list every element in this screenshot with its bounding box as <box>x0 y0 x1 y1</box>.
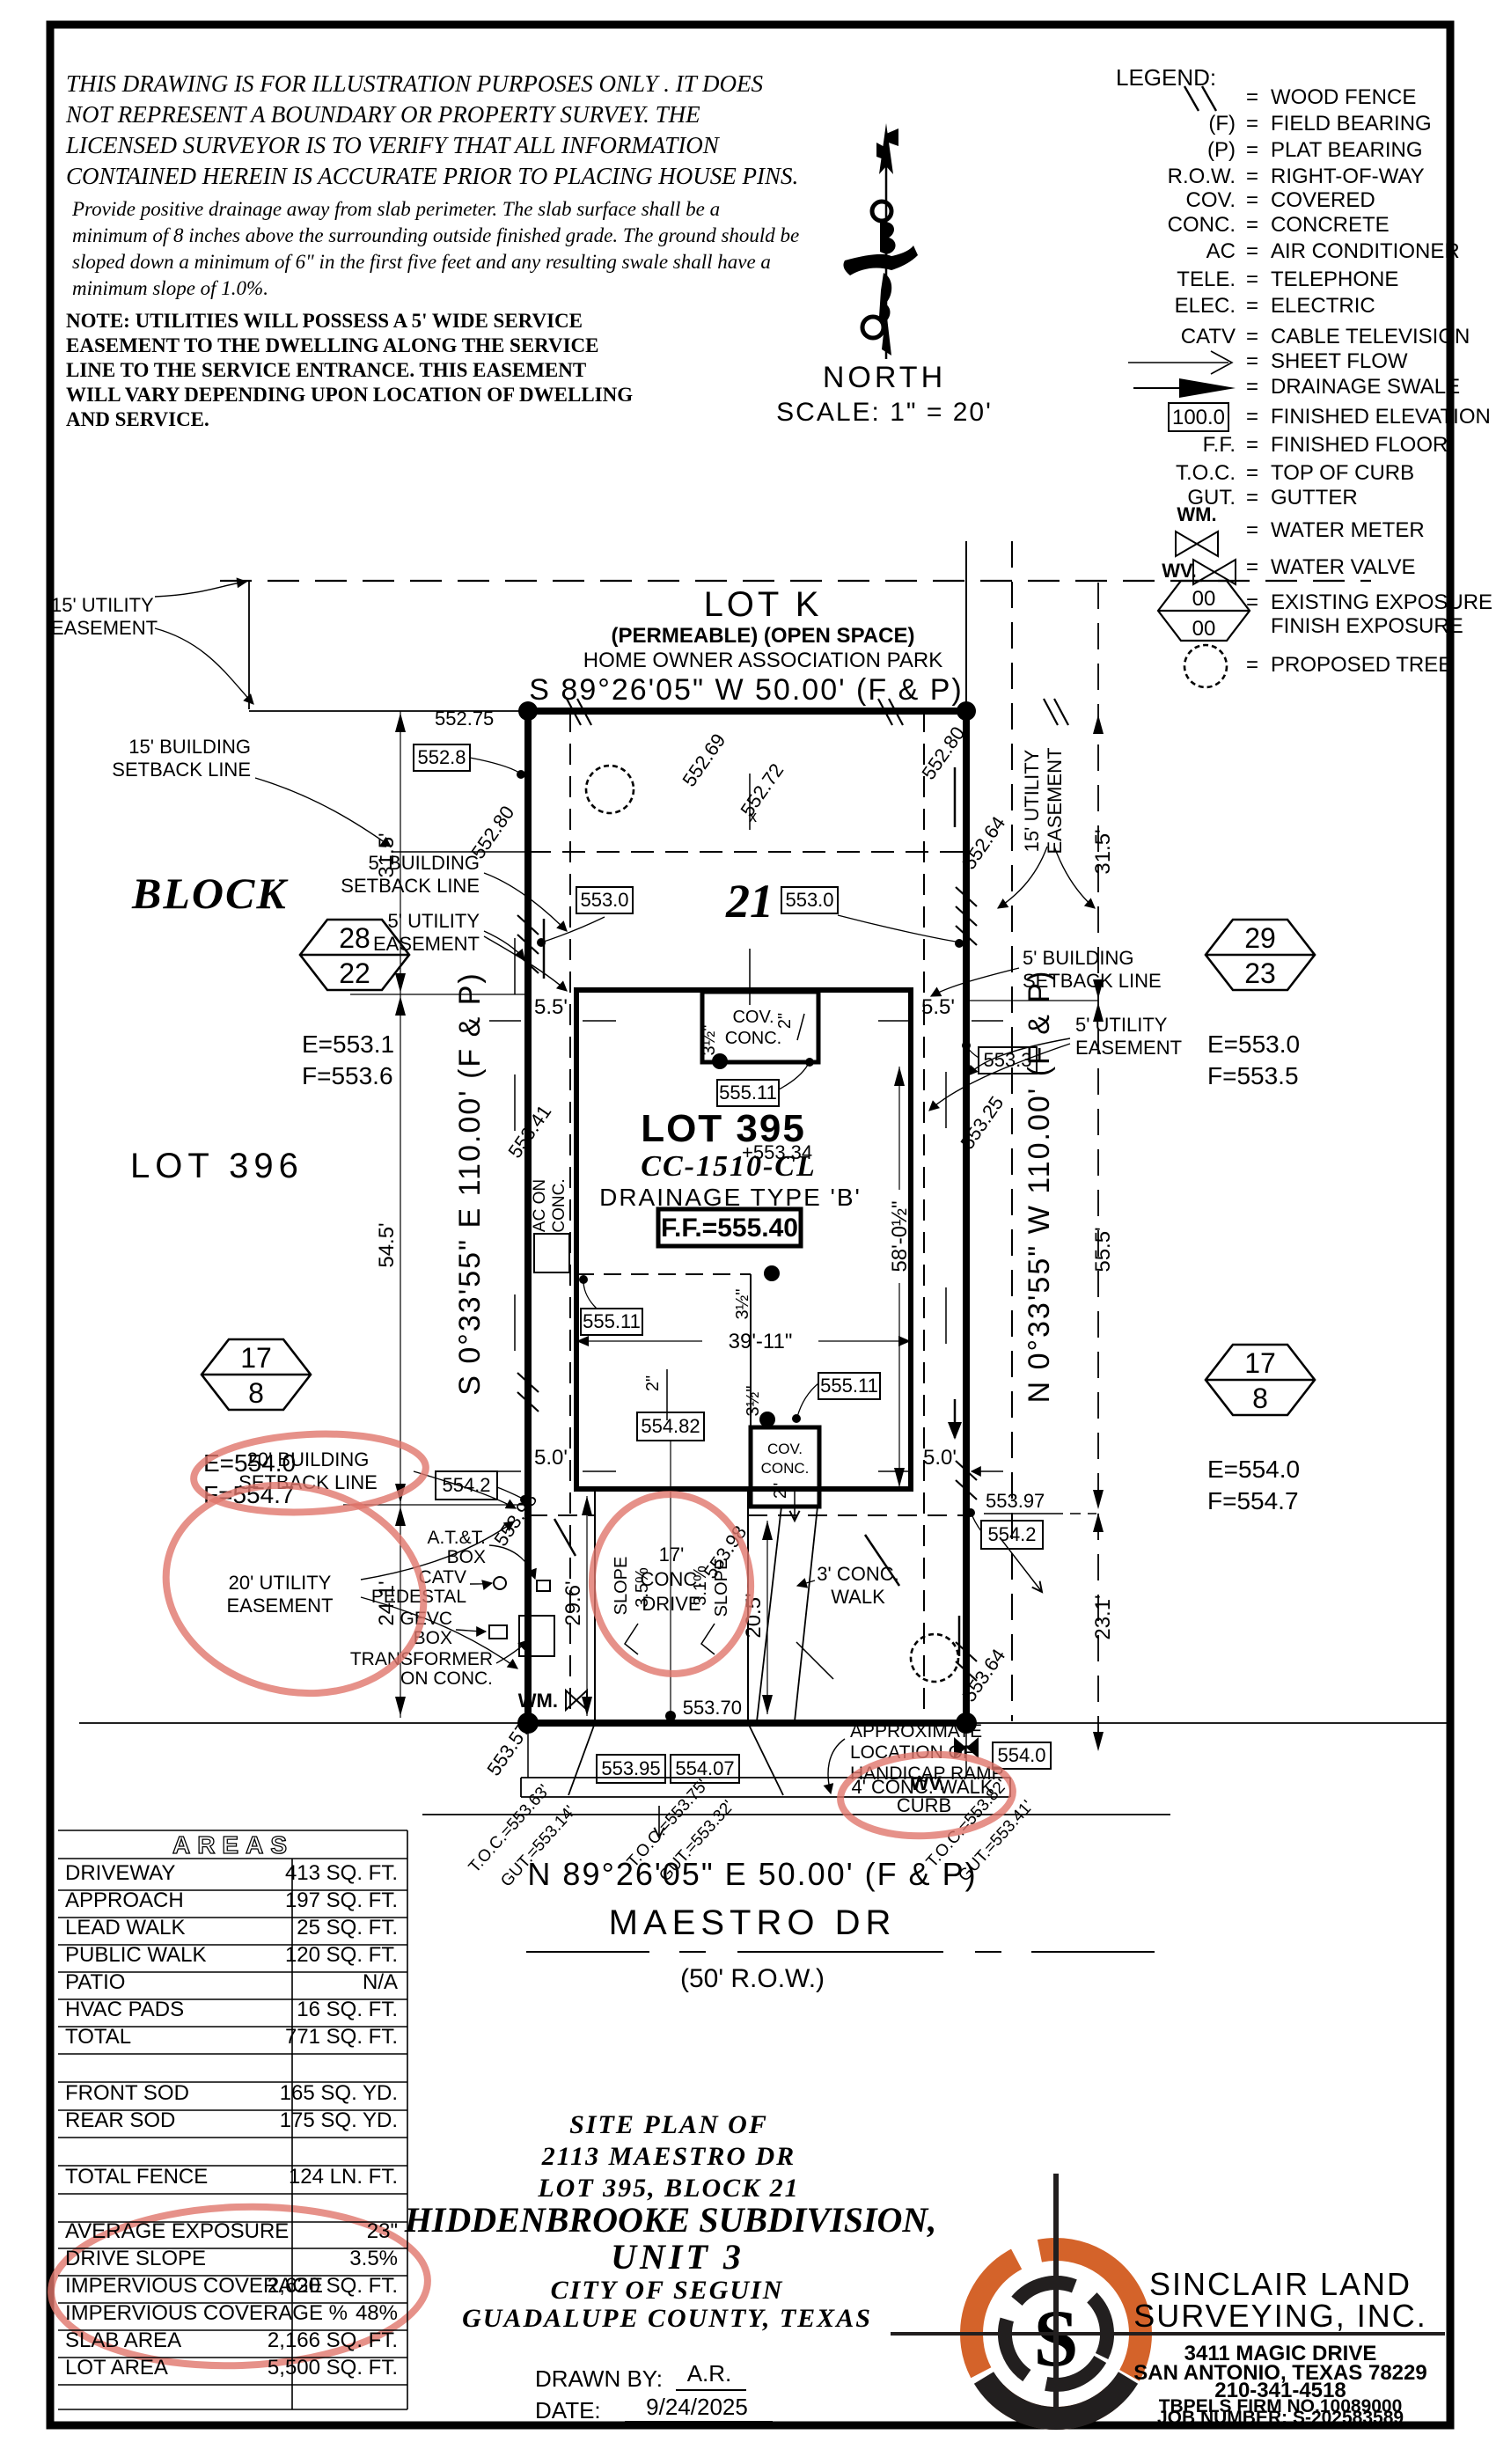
elev-554-82: 554.82 <box>641 1415 700 1437</box>
areas-row-value: N/A <box>363 1970 398 1994</box>
scale-label: SCALE: 1" = 20' <box>776 398 993 427</box>
legend-abbr: (F) <box>1208 112 1236 136</box>
legend-label-sheet-flow: SHEET FLOW <box>1271 349 1408 373</box>
legend-abbr: TELE. <box>1177 268 1236 291</box>
title-line4: HIDDENBROOKE SUBDIVISION, <box>404 2200 937 2240</box>
street-row: (50' R.O.W.) <box>680 1964 825 1993</box>
hex2-finish: 23 <box>1244 957 1276 989</box>
rear-cov: COV. <box>767 1441 803 1457</box>
elev-553-95: 553.95 <box>601 1757 660 1779</box>
legend-equals: = <box>1246 268 1258 291</box>
areas-row-label: DRIVEWAY <box>65 1861 175 1885</box>
walk3-1: 3' CONC. <box>817 1563 898 1585</box>
hex4-existing: 17 <box>1244 1347 1276 1379</box>
dim-5-0-left: 5.0' <box>534 1446 568 1470</box>
drive-17: 17' <box>659 1544 685 1566</box>
areas-row-value: 23" <box>367 2219 398 2243</box>
north-label: NORTH <box>823 361 946 394</box>
legend-label-concrete: CONCRETE <box>1271 213 1390 237</box>
title-line6: CITY OF SEGUIN <box>551 2276 784 2305</box>
disclaimer-para1-line: NOT REPRESENT A BOUNDARY OR PROPERTY SUR… <box>65 101 700 128</box>
legend-equals: = <box>1246 85 1258 109</box>
rear-3half: 3½" <box>744 1386 763 1417</box>
elev-553-0-right: 553.0 <box>785 889 833 911</box>
surveyor-job: JOB NUMBER: S-202583589 <box>1157 2408 1404 2428</box>
legend-equals: = <box>1246 239 1258 263</box>
legend-label-telephone: TELEPHONE <box>1271 268 1398 291</box>
dim-5-5-right: 5.5' <box>921 995 955 1019</box>
hex4-f: F=554.7 <box>1207 1487 1299 1514</box>
porch-3half: 3½" <box>700 1025 719 1056</box>
elev-554-2-left: 554.2 <box>442 1474 490 1496</box>
ue15-right-2: EASEMENT <box>1044 747 1066 854</box>
legend-equals: = <box>1246 486 1258 510</box>
disclaimer-para2-line: minimum slope of 1.0%. <box>72 277 268 299</box>
bs5-right-1: 5' BUILDING <box>1023 947 1133 969</box>
bs15-left-2: SETBACK LINE <box>112 759 251 781</box>
areas-row-label: APPROACH <box>65 1888 184 1912</box>
surveyor-name-1: SINCLAIR LAND <box>1149 2266 1412 2302</box>
walk3-2: WALK <box>831 1586 885 1608</box>
drainage-type: DRAINAGE TYPE 'B' <box>599 1184 862 1211</box>
ue15-right-1: 15' UTILITY <box>1021 749 1043 852</box>
elev-554-2-right: 554.2 <box>987 1523 1036 1545</box>
elev-555-11-b: 555.11 <box>583 1310 641 1332</box>
dim-55-5: 55.5' <box>1091 1227 1115 1272</box>
legend-equals: = <box>1246 349 1258 373</box>
x-marker: x <box>749 808 757 825</box>
wm-abbr: WM. <box>1177 503 1216 525</box>
legend-label-finish-exposure: FINISH EXPOSURE <box>1271 614 1463 638</box>
date-value: 9/24/2025 <box>646 2394 748 2420</box>
areas-row-label: LOT AREA <box>65 2356 168 2380</box>
disclaimer-note-line: NOTE: UTILITIES WILL POSSESS A 5' WIDE S… <box>66 310 583 332</box>
catv-1: CATV <box>419 1567 466 1588</box>
bearing-west: S 0°33'55" E 110.00' (F & P) <box>453 972 487 1395</box>
slope-left: SLOPE <box>612 1557 631 1616</box>
spot-553-70: 553.70 <box>683 1697 742 1719</box>
legend-abbr: ELEC. <box>1175 294 1236 318</box>
surveyor-name-2: SURVEYING, INC. <box>1133 2298 1426 2334</box>
porch-conc: CONC. <box>725 1029 781 1048</box>
disclaimer-para2-line: sloped down a minimum of 6" in the first… <box>72 251 771 273</box>
disclaimer-note-line: LINE TO THE SERVICE ENTRANCE. THIS EASEM… <box>66 359 586 381</box>
legend-label-existing-exposure: EXISTING EXPOSURE <box>1271 590 1492 614</box>
hex4-e: E=554.0 <box>1207 1456 1300 1483</box>
areas-row-label: TOTAL <box>65 2025 131 2049</box>
areas-title: AREAS <box>172 1831 294 1859</box>
spot-552-75: 552.75 <box>435 708 494 730</box>
legend-label-finished-elevation: FINISHED ELEVATION <box>1271 405 1491 429</box>
elev-555-11-a: 555.11 <box>719 1082 777 1104</box>
dim-31-5-left: 31.5' <box>375 832 399 877</box>
legend-label-water-meter: WATER METER <box>1271 518 1425 542</box>
title-line1: SITE PLAN OF <box>569 2110 768 2139</box>
legend-label-field-bearing: FIELD BEARING <box>1271 112 1432 136</box>
drawn-by-label: DRAWN BY: <box>535 2365 663 2392</box>
title-line2: 2113 MAESTRO DR <box>541 2142 796 2171</box>
wv-abbr: WV. <box>1162 560 1197 582</box>
areas-row-label: TOTAL FENCE <box>65 2165 208 2189</box>
att-2: BOX <box>447 1547 486 1567</box>
dim-58-0: 58'-0½" <box>888 1200 912 1272</box>
att-1: A.T.&T. <box>427 1528 486 1548</box>
areas-row-label: AVERAGE EXPOSURE <box>65 2219 289 2243</box>
disclaimer-para1-line: LICENSED SURVEYOR IS TO VERIFY THAT ALL … <box>65 132 721 158</box>
ue5-left-1: 5' UTILITY <box>388 910 480 932</box>
porch-2in: 2" <box>775 1013 795 1029</box>
finished-elevation-icon: 100.0 <box>1169 403 1228 431</box>
areas-row-value: 124 LN. FT. <box>289 2165 398 2189</box>
hex1-existing: 28 <box>339 922 370 954</box>
legend-equals: = <box>1246 518 1258 542</box>
areas-row-label: PATIO <box>65 1970 125 1994</box>
areas-row-label: FRONT SOD <box>65 2081 189 2105</box>
spot-553-97: 553.97 <box>986 1490 1045 1512</box>
lot-k-title: LOT K <box>704 585 823 624</box>
areas-row-label: IMPERVIOUS COVERAGE % <box>65 2301 348 2325</box>
ue20-1: 20' UTILITY <box>229 1572 332 1594</box>
legend-label-finished-floor: FINISHED FLOOR <box>1271 433 1448 457</box>
bearing-north: S 89°26'05" W 50.00' (F & P) <box>529 673 963 707</box>
title-line7: GUADALUPE COUNTY, TEXAS <box>462 2304 872 2333</box>
legend-label-drainage-swale: DRAINAGE SWALE <box>1271 375 1460 399</box>
legend-abbr: F.F. <box>1203 433 1236 457</box>
areas-row-label: DRIVE SLOPE <box>65 2247 206 2270</box>
wm-label: WM. <box>518 1690 558 1712</box>
exposure-existing: 00 <box>1192 587 1216 611</box>
areas-row-value: 2,620 SQ. FT. <box>268 2274 398 2298</box>
legend-label-electric: ELECTRIC <box>1271 294 1375 318</box>
areas-row-label: SLAB AREA <box>65 2328 181 2352</box>
title-line5: UNIT 3 <box>611 2237 744 2277</box>
legend-abbr: R.O.W. <box>1168 165 1236 188</box>
curb-label: CURB <box>897 1794 951 1816</box>
legend-abbr: COV. <box>1186 188 1236 212</box>
catv-2: PEDESTAL <box>371 1587 466 1607</box>
legend-title: LEGEND: <box>1116 64 1216 91</box>
slope-right: SLOPE <box>712 1558 731 1617</box>
areas-row-value: 3.5% <box>349 2247 398 2270</box>
rear-2in: 2" <box>771 1483 790 1499</box>
ue5-right-2: EASEMENT <box>1075 1037 1182 1059</box>
legend-equals: = <box>1246 405 1258 429</box>
legend-equals: = <box>1246 138 1258 162</box>
elev-554-0: 554.0 <box>997 1744 1045 1766</box>
areas-row-value: 175 SQ. YD. <box>280 2108 398 2132</box>
lot-k-note2: HOME OWNER ASSOCIATION PARK <box>583 649 943 672</box>
legend-label-covered: COVERED <box>1271 188 1375 212</box>
disclaimer-para2-line: Provide positive drainage away from slab… <box>71 198 720 220</box>
bs5-right-2: SETBACK LINE <box>1023 970 1162 992</box>
drawn-by-value: A.R. <box>687 2360 732 2387</box>
areas-row-label: REAR SOD <box>65 2108 175 2132</box>
street-name: MAESTRO DR <box>609 1903 897 1942</box>
areas-row-value: 2,166 SQ. FT. <box>268 2328 398 2352</box>
legend-label-gutter: GUTTER <box>1271 486 1358 510</box>
disclaimer-note-line: AND SERVICE. <box>66 408 209 430</box>
legend-equals: = <box>1246 653 1258 677</box>
hex2-e: E=553.0 <box>1207 1030 1300 1058</box>
areas-row-value: 5,500 SQ. FT. <box>268 2356 398 2380</box>
legend-label-air-conditioner: AIR CONDITIONER <box>1271 239 1460 263</box>
dim-5-5-left: 5.5' <box>534 995 568 1019</box>
areas-row-value: 197 SQ. FT. <box>285 1888 398 1912</box>
rear-conc: CONC. <box>761 1460 810 1477</box>
dim-29-6: 29.6' <box>561 1580 585 1625</box>
disclaimer-para1-line: CONTAINED HEREIN IS ACCURATE PRIOR TO PL… <box>66 163 798 189</box>
elev-553-0-left: 553.0 <box>580 889 628 911</box>
dim-5-0-right: 5.0' <box>923 1446 957 1470</box>
legend-equals: = <box>1246 112 1258 136</box>
legend-equals: = <box>1246 461 1258 485</box>
dim-39-11: 39'-11" <box>729 1330 793 1353</box>
xfmr-1: TRANSFORMER <box>350 1649 493 1669</box>
block-number: 21 <box>725 875 774 928</box>
ac-on: AC ON <box>531 1179 549 1232</box>
porch-cov: COV. <box>732 1008 774 1027</box>
hex1-f: F=553.6 <box>302 1062 393 1089</box>
lot-k-note1: (PERMEABLE) (OPEN SPACE) <box>612 624 915 648</box>
areas-row-value: 16 SQ. FT. <box>297 1998 398 2021</box>
block-word: BLOCK <box>131 869 289 918</box>
bs15-left-1: 15' BUILDING <box>128 736 251 758</box>
legend-abbr: (P) <box>1207 138 1236 162</box>
dim-23-1: 23.1' <box>1091 1595 1115 1639</box>
areas-row-label: HVAC PADS <box>65 1998 184 2021</box>
legend-equals: = <box>1246 375 1258 399</box>
legend-equals: = <box>1246 433 1258 457</box>
handicap-1: APPROXIMATE <box>850 1721 982 1742</box>
legend-abbr: T.O.C. <box>1176 461 1236 485</box>
dim-54-5: 54.5' <box>375 1222 399 1267</box>
finished-elevation-value: 100.0 <box>1172 406 1225 429</box>
legend-label-wood-fence: WOOD FENCE <box>1271 85 1416 109</box>
elev-555-11-c: 555.11 <box>820 1375 878 1397</box>
date-label: DATE: <box>535 2397 601 2424</box>
elev-554-07: 554.07 <box>675 1757 734 1779</box>
disclaimer-note-line: WILL VARY DEPENDING UPON LOCATION OF DWE… <box>66 384 633 406</box>
legend-abbr: AC <box>1206 239 1236 263</box>
hex3-finish: 8 <box>248 1377 264 1409</box>
legend-label-right-of-way: RIGHT-OF-WAY <box>1271 165 1425 188</box>
bs20-1: 20' BUILDING <box>247 1448 370 1470</box>
finished-floor-value: F.F.=555.40 <box>661 1214 798 1243</box>
ue15-left-1: 15' UTILITY <box>51 594 154 616</box>
disclaimer-para2-line: minimum of 8 inches above the surroundin… <box>72 224 799 246</box>
legend-equals: = <box>1246 213 1258 237</box>
site-plan-sheet: THIS DRAWING IS FOR ILLUSTRATION PURPOSE… <box>0 0 1496 2464</box>
bs5-left-2: SETBACK LINE <box>341 875 480 897</box>
dim-31-5-right: 31.5' <box>1091 829 1115 874</box>
legend-label-water-valve: WATER VALVE <box>1271 555 1415 579</box>
slope-31: 3.1% <box>691 1566 710 1606</box>
legend-equals: = <box>1246 188 1258 212</box>
legend-label-proposed-tree: PROPOSED TREE <box>1271 653 1452 677</box>
legend-equals: = <box>1246 555 1258 579</box>
areas-row-value: 165 SQ. YD. <box>280 2081 398 2105</box>
lot-396-label: LOT 396 <box>130 1147 304 1185</box>
hex2-existing: 29 <box>1244 922 1276 954</box>
legend-label-plat-bearing: PLAT BEARING <box>1271 138 1423 162</box>
elev-552-8: 552.8 <box>417 746 466 768</box>
disclaimer-para1-line: THIS DRAWING IS FOR ILLUSTRATION PURPOSE… <box>66 70 763 97</box>
title-line3: LOT 395, BLOCK 21 <box>537 2174 799 2203</box>
areas-row-value: 413 SQ. FT. <box>285 1861 398 1885</box>
areas-row-value: 48% <box>356 2301 398 2325</box>
legend-label-top-of-curb: TOP OF CURB <box>1271 461 1414 485</box>
bearing-south: N 89°26'05" E 50.00' (F & P) <box>527 1856 977 1892</box>
ue20-2: EASEMENT <box>226 1595 333 1617</box>
ue5-right-1: 5' UTILITY <box>1075 1014 1168 1036</box>
legend-label-cable-television: CABLE TELEVISION <box>1271 325 1470 348</box>
bearing-east: N 0°33'55" W 110.00' (F & P) <box>1023 970 1056 1404</box>
exposure-finish: 00 <box>1192 617 1216 641</box>
areas-row-label: PUBLIC WALK <box>65 1943 207 1967</box>
legend-abbr: CONC. <box>1168 213 1236 237</box>
hex4-finish: 8 <box>1252 1382 1268 1414</box>
hex1-finish: 22 <box>339 957 370 989</box>
hex3-existing: 17 <box>240 1342 272 1374</box>
ac-conc: CONC. <box>550 1178 568 1232</box>
areas-row-value: 120 SQ. FT. <box>285 1943 398 1967</box>
mid-3half: 3½" <box>733 1289 752 1320</box>
hex2-f: F=553.5 <box>1207 1062 1299 1089</box>
slope-35: 3.5% <box>633 1567 652 1608</box>
ue5-left-2: EASEMENT <box>373 933 480 955</box>
hex1-e: E=553.1 <box>302 1030 394 1058</box>
legend-abbr: CATV <box>1181 325 1236 348</box>
legend-equals: = <box>1246 294 1258 318</box>
legend-equals: = <box>1246 165 1258 188</box>
mid-2in: 2" <box>643 1375 663 1391</box>
areas-row-value: 771 SQ. FT. <box>285 2025 398 2049</box>
legend-equals: = <box>1246 325 1258 348</box>
areas-row-label: LEAD WALK <box>65 1916 186 1940</box>
ue15-left-2: EASEMENT <box>51 617 158 639</box>
model-number: CC-1510-CL <box>641 1150 816 1183</box>
disclaimer-note-line: EASEMENT TO THE DWELLING ALONG THE SERVI… <box>66 334 598 356</box>
xfmr-2: ON CONC. <box>400 1668 493 1689</box>
areas-row-value: 25 SQ. FT. <box>297 1916 398 1940</box>
